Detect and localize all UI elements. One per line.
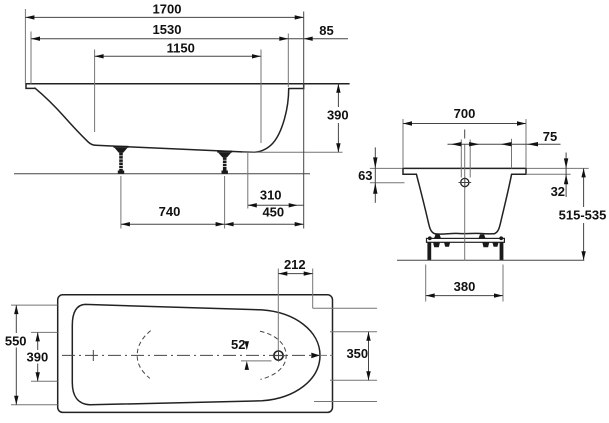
svg-text:32: 32: [551, 184, 565, 199]
svg-text:700: 700: [454, 106, 476, 121]
svg-text:1700: 1700: [153, 1, 182, 16]
svg-text:740: 740: [159, 204, 181, 219]
svg-text:350: 350: [346, 346, 368, 361]
svg-text:310: 310: [260, 188, 282, 203]
svg-text:75: 75: [543, 129, 557, 144]
svg-text:63: 63: [358, 168, 372, 183]
svg-text:515-535: 515-535: [559, 208, 607, 223]
svg-text:212: 212: [284, 257, 306, 272]
svg-text:380: 380: [454, 279, 476, 294]
svg-text:390: 390: [327, 108, 349, 123]
svg-text:1150: 1150: [167, 41, 195, 56]
svg-text:390: 390: [27, 350, 49, 365]
svg-text:450: 450: [262, 205, 284, 220]
svg-text:550: 550: [5, 334, 27, 349]
svg-text:1530: 1530: [153, 22, 182, 37]
svg-text:52: 52: [231, 337, 245, 352]
svg-text:85: 85: [319, 23, 333, 38]
